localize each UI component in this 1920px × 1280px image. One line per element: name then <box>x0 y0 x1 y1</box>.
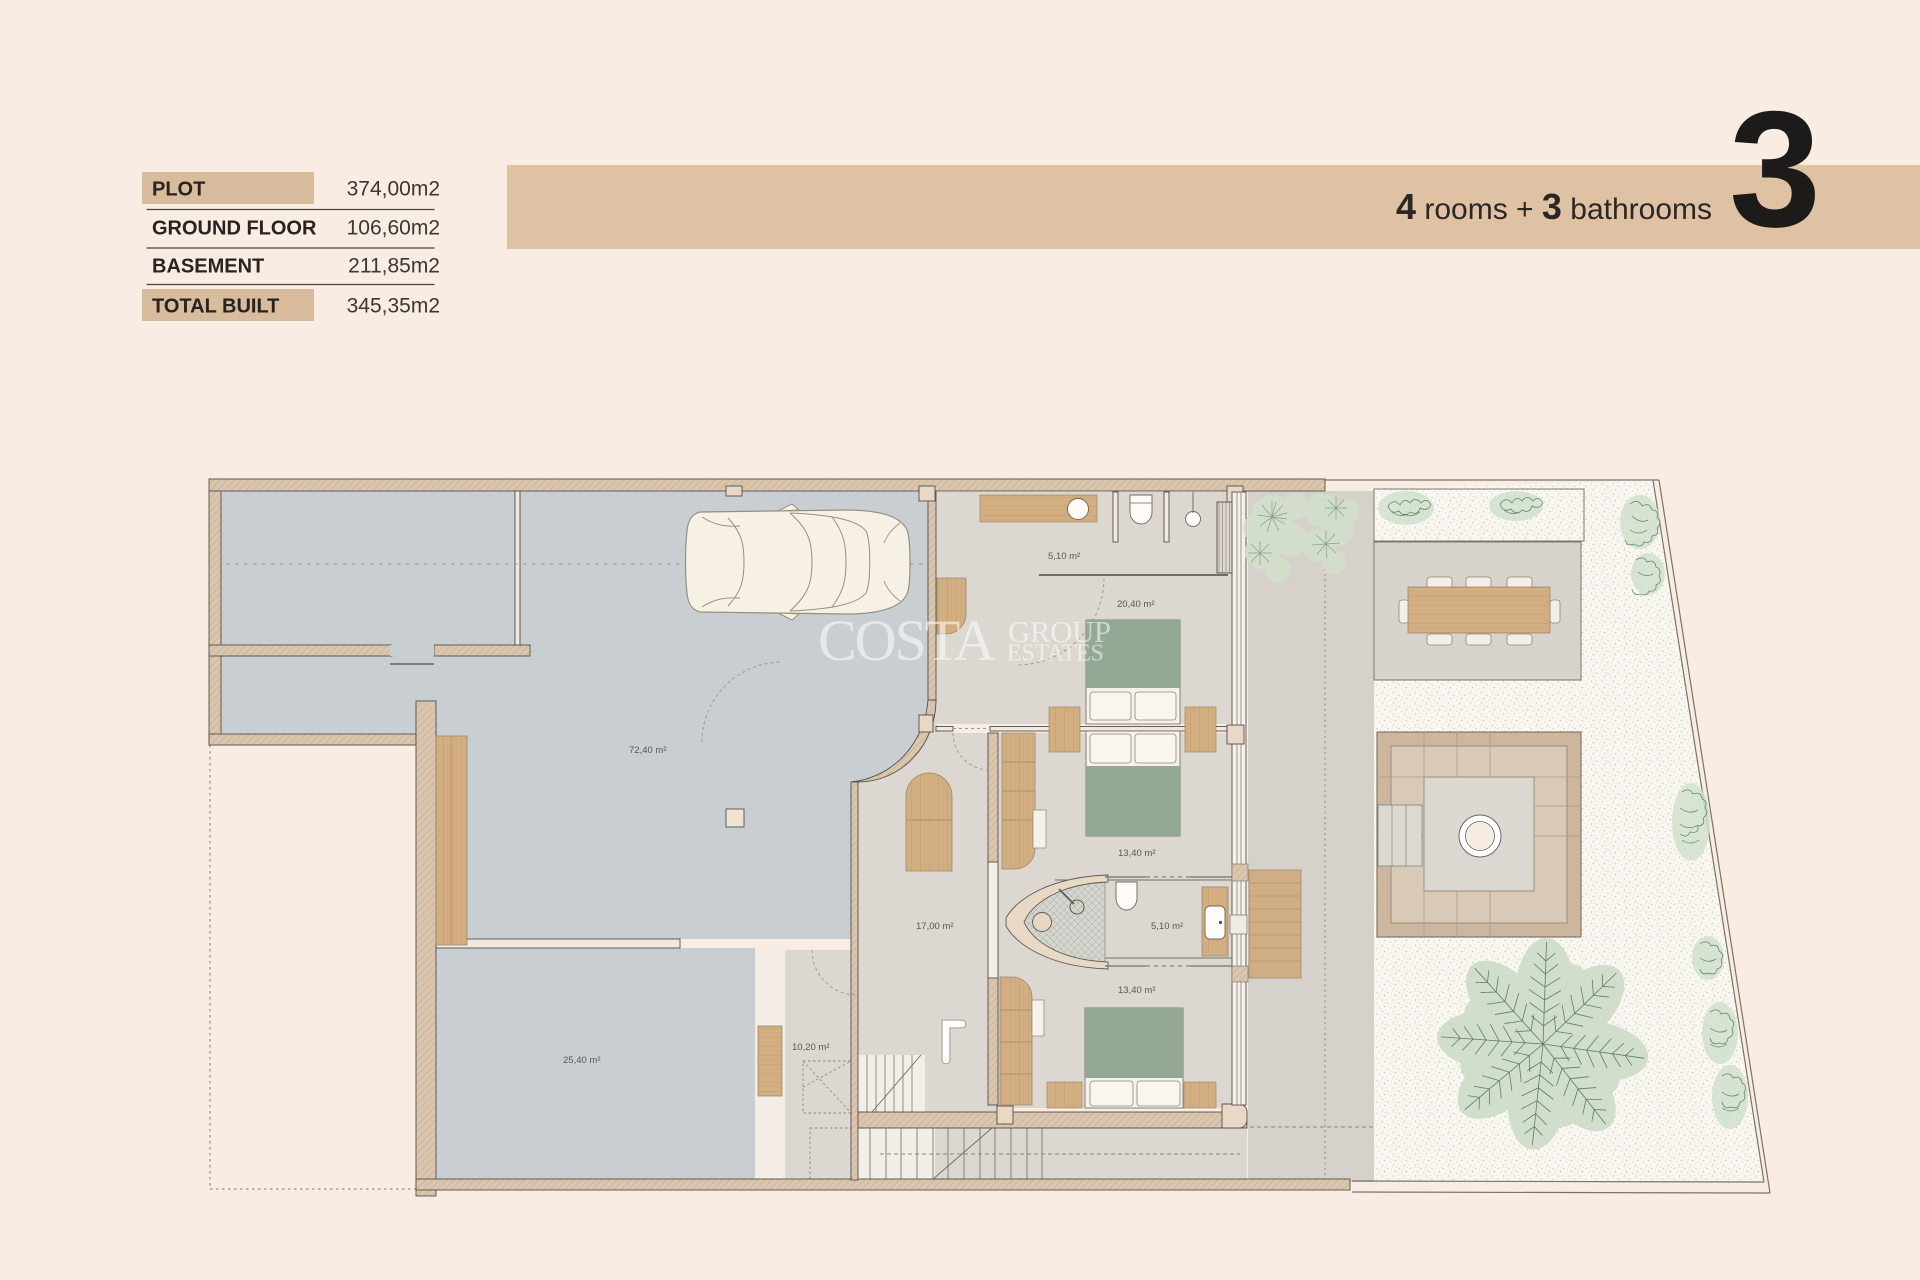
svg-text:13,40 m²: 13,40 m² <box>1118 985 1156 996</box>
svg-text:BASEMENT: BASEMENT <box>152 256 264 278</box>
svg-text:17,00 m²: 17,00 m² <box>916 921 954 932</box>
svg-text:10,20 m²: 10,20 m² <box>792 1042 830 1053</box>
svg-text:ESTATES: ESTATES <box>1007 641 1104 667</box>
svg-text:211,85m2: 211,85m2 <box>348 255 440 278</box>
svg-text:72,40 m²: 72,40 m² <box>629 745 667 756</box>
svg-text:COSTA: COSTA <box>818 608 996 673</box>
svg-text:13,40 m²: 13,40 m² <box>1118 848 1156 859</box>
svg-text:GROUND FLOOR: GROUND FLOOR <box>152 218 317 240</box>
svg-text:PLOT: PLOT <box>152 179 205 201</box>
svg-text:106,60m2: 106,60m2 <box>347 217 440 240</box>
svg-text:345,35m2: 345,35m2 <box>347 295 440 318</box>
svg-text:25,40 m²: 25,40 m² <box>563 1055 601 1066</box>
svg-text:TOTAL BUILT: TOTAL BUILT <box>152 296 279 318</box>
svg-text:374,00m2: 374,00m2 <box>347 178 440 201</box>
svg-text:5,10 m²: 5,10 m² <box>1151 921 1183 932</box>
svg-text:5,10 m²: 5,10 m² <box>1048 551 1080 562</box>
svg-text:4 rooms + 3 bathrooms: 4 rooms + 3 bathrooms <box>1396 186 1712 227</box>
svg-text:20,40 m²: 20,40 m² <box>1117 599 1155 610</box>
svg-text:3: 3 <box>1729 77 1821 261</box>
